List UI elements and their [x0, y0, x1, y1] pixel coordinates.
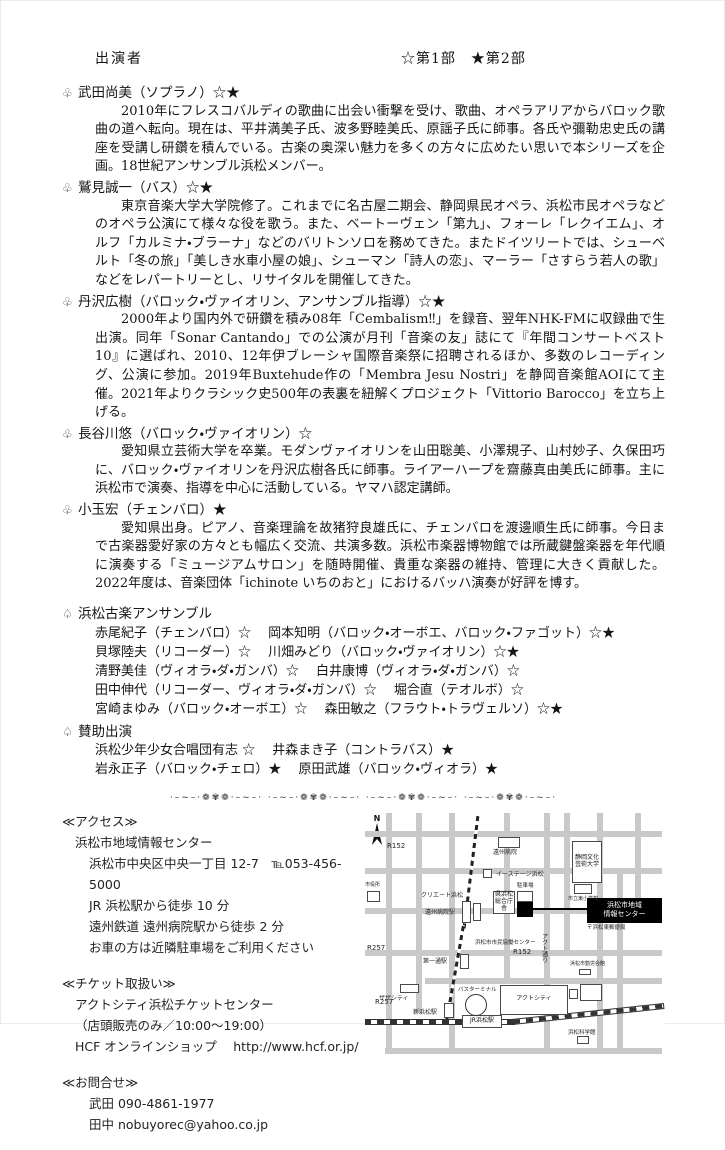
guest-title: 賛助出演: [78, 723, 132, 742]
map-label: アクト通り: [540, 933, 547, 963]
map-label: 新浜松駅: [413, 1010, 437, 1017]
map-label: クリエート浜松: [421, 893, 463, 900]
ticket-heading: ≪チケット取扱い≫: [62, 973, 365, 994]
venue-highlight-label: 浜松市地域 情報センター: [587, 898, 662, 923]
map-label: 市立東小学校: [568, 897, 598, 903]
map-building: [367, 891, 380, 902]
ensemble-members: 赤尾紀子（チェンバロ）☆ 岡本知明（バロック・オーボエ、バロック・ファゴット）☆…: [62, 624, 665, 720]
page-title: 出演者: [95, 48, 143, 68]
ticket-section: ≪チケット取扱い≫ アクトシティ浜松チケットセンター（店頭販売のみ／10:00〜…: [62, 973, 365, 1057]
map-label: R152: [387, 843, 405, 851]
bus-terminal-circle: [465, 994, 487, 1016]
access-section: ≪アクセス≫ 浜松市地域情報センター 浜松市中央区中央一丁目 12-7 ℡053…: [62, 811, 365, 958]
performer-entry: ♧ 鷲見誠一（バス）☆★ 東京音楽大学大学院修了。これまでに名古屋二期会、静岡県…: [62, 179, 665, 291]
performer-entry: ♧ 丹沢広樹（バロック・ヴァイオリン、アンサンブル指導）☆★ 2000年より国内…: [62, 293, 665, 423]
performer-bio: 東京音楽大学大学院修了。これまでに名古屋二期会、静岡県民オペラ、浜松市民オペラな…: [95, 198, 665, 291]
program-page: 出演者 ☆第1部 ★第2部 ♧ 武田尚美（ソプラノ）☆★ 2010年にフレスコバ…: [0, 0, 725, 1150]
guest-members: 浜松少年少女合唱団有志 ☆ 井森まき子（コントラバス）★岩永正子（バロック・チェ…: [62, 741, 665, 779]
part-legend: ☆第1部 ★第2部: [401, 48, 526, 68]
venue-name: 浜松市地域情報センター: [75, 832, 365, 853]
club-bullet-icon: ♧: [62, 293, 78, 312]
club-bullet-icon: ♧: [62, 425, 78, 444]
map-building: [460, 954, 469, 969]
map-building: [569, 989, 578, 999]
map-building: [400, 984, 419, 993]
map-building: [517, 891, 533, 902]
map-building: [579, 969, 591, 975]
ensemble-section: ♤ 浜松古楽アンサンブル 赤尾紀子（チェンバロ）☆ 岡本知明（バロック・オーボエ…: [62, 605, 665, 720]
venue-building: [517, 902, 533, 917]
performer-bio: 愛知県出身。ピアノ、音楽理論を故猪狩良雄氏に、チェンバロを渡邊順生氏に師事。今日…: [95, 520, 665, 594]
performer-bio: 2010年にフレスコバルディの歌曲に出会い衝撃を受け、歌曲、オペラアリアからバロ…: [95, 103, 665, 177]
contact-lines: 武田 090-4861-1977田中 nobuyorec@yahoo.co.jp: [62, 1093, 365, 1135]
map-label: ザザシティ: [379, 996, 409, 1003]
club-bullet-icon: ♧: [62, 179, 78, 198]
access-line: 浜松市中央区中央一丁目 12-7 ℡053-456-5000: [89, 853, 365, 895]
map-label: R152: [513, 949, 531, 957]
map-building: 静岡文化 芸術大学: [572, 841, 602, 883]
map-building: JR浜松駅: [462, 1015, 502, 1028]
ticket-line: HCF オンラインショップ http://www.hcf.or.jp/: [75, 1036, 365, 1057]
ensemble-member-line: 田中伸代（リコーダー、ヴィオラ・ダ・ガンバ）☆ 堀合直（テオルボ）☆: [95, 681, 665, 700]
map-building: [444, 1003, 454, 1018]
map-label: 駐車場: [517, 883, 534, 889]
performer-bio: 愛知県立芸術大学を卒業。モダンヴァイオリンを山田聡美、小澤規子、山村妙子、久保田…: [95, 443, 665, 499]
map-road: [617, 868, 623, 1053]
access-line: 遠州鉄道 遠州病院駅から徒歩 2 分: [89, 916, 365, 937]
ticket-line: アクトシティ浜松チケットセンター: [75, 994, 365, 1015]
north-label: N: [369, 815, 385, 823]
map-label: R257: [367, 945, 385, 953]
performer-name: 鷲見誠一（バス）☆★: [78, 179, 213, 198]
map-label: バスターミナル: [458, 987, 497, 993]
map-building: [462, 901, 471, 923]
guest-member-line: 浜松少年少女合唱団有志 ☆ 井森まき子（コントラバス）★: [95, 741, 665, 760]
page-header: 出演者 ☆第1部 ★第2部: [62, 48, 665, 68]
map-building: [577, 1036, 589, 1044]
spade-bullet-icon: ♤: [62, 723, 78, 742]
club-bullet-icon: ♧: [62, 84, 78, 103]
access-line: お車の方は近隣駐車場をご利用ください: [89, 937, 365, 958]
map-label: 〒浜松東郵便局: [587, 925, 626, 931]
map-label: 浜松市勤労会館: [570, 962, 605, 968]
map-building: アクトシティ: [500, 985, 568, 1015]
performer-entry: ♧ 長谷川悠（バロック・ヴァイオリン）☆ 愛知県立芸術大学を卒業。モダンヴァイオ…: [62, 425, 665, 499]
map-label: 浜松市市民協働センター: [475, 940, 536, 946]
contact-heading: ≪お問合せ≫: [62, 1072, 365, 1093]
map-label: 遠州病院: [493, 850, 517, 857]
spade-bullet-icon: ♤: [62, 605, 78, 624]
contact-line: 武田 090-4861-1977: [89, 1093, 365, 1114]
performer-entry: ♧ 武田尚美（ソプラノ）☆★ 2010年にフレスコバルディの歌曲に出会い衝撃を受…: [62, 84, 665, 177]
performer-name: 小玉宏（チェンバロ）★: [78, 501, 227, 520]
map-label: 浜松科学館: [568, 1030, 596, 1036]
performer-bio: 2000年より国内外で研鑽を積み08年「Cembalism‼」を録音、翌年NHK…: [95, 311, 665, 423]
map-road: [416, 813, 422, 1013]
contact-line: 田中 nobuyorec@yahoo.co.jp: [89, 1114, 365, 1135]
map-label: 第一通駅: [423, 959, 447, 966]
ensemble-member-line: 宮崎まゆみ（バロック・オーボエ）☆ 森田敏之（フラウト・トラヴェルソ）☆★: [95, 700, 665, 719]
ornament-divider: ·–~–·❁✾❁·–~–· ·–~–·❁✾❁·–~–· ·–~–·❁✾❁·–~–…: [62, 793, 665, 803]
club-bullet-icon: ♧: [62, 501, 78, 520]
map: N 静岡文化 芸術大学県浜松 総合庁舎アクトシティJR浜松駅浜松市地域 情報セン…: [365, 813, 665, 1085]
info-section: ≪アクセス≫ 浜松市地域情報センター 浜松市中央区中央一丁目 12-7 ℡053…: [62, 811, 665, 1150]
map-road: [564, 813, 570, 953]
map-building: [580, 984, 602, 1001]
access-heading: ≪アクセス≫: [62, 811, 365, 832]
map-building: [498, 837, 520, 848]
ensemble-member-line: 清野美佳（ヴィオラ・ダ・ガンバ）☆ 白井康博（ヴィオラ・ダ・ガンバ）☆: [95, 662, 665, 681]
map-label: 遠州病院駅: [425, 910, 455, 917]
ticket-lines: アクトシティ浜松チケットセンター（店頭販売のみ／10:00〜19:00）HCF …: [62, 994, 365, 1057]
ensemble-member-line: 貝塚陸夫（リコーダー）☆ 川畑みどり（バロック・ヴァイオリン）☆★: [95, 643, 665, 662]
ensemble-title: 浜松古楽アンサンブル: [78, 605, 212, 624]
map-label: イーステージ浜松: [496, 872, 544, 879]
performer-name: 長谷川悠（バロック・ヴァイオリン）☆: [78, 425, 312, 444]
contact-section: ≪お問合せ≫ 武田 090-4861-1977田中 nobuyorec@yaho…: [62, 1072, 365, 1135]
performer-name: 丹沢広樹（バロック・ヴァイオリン、アンサンブル指導）☆★: [78, 293, 445, 312]
venue-leader-line: [533, 908, 587, 910]
ticket-line: （店頭販売のみ／10:00〜19:00）: [75, 1015, 365, 1036]
guest-member-line: 岩永正子（バロック・チェロ）★ 原田武雄（バロック・ヴィオラ）★: [95, 760, 665, 779]
guest-section: ♤ 賛助出演 浜松少年少女合唱団有志 ☆ 井森まき子（コントラバス）★岩永正子（…: [62, 723, 665, 780]
map-building: 県浜松 総合庁舎: [493, 891, 515, 914]
access-line: JR 浜松駅から徒歩 10 分: [89, 895, 365, 916]
map-building: [473, 903, 481, 921]
map-building: [574, 884, 592, 894]
performer-list: ♧ 武田尚美（ソプラノ）☆★ 2010年にフレスコバルディの歌曲に出会い衝撃を受…: [62, 84, 665, 594]
map-label: 市役所: [365, 883, 380, 889]
performer-entry: ♧ 小玉宏（チェンバロ）★ 愛知県出身。ピアノ、音楽理論を故猪狩良雄氏に、チェン…: [62, 501, 665, 594]
access-lines: 浜松市中央区中央一丁目 12-7 ℡053-456-5000JR 浜松駅から徒歩…: [62, 853, 365, 958]
performer-name: 武田尚美（ソプラノ）☆★: [78, 84, 240, 103]
info-left-column: ≪アクセス≫ 浜松市地域情報センター 浜松市中央区中央一丁目 12-7 ℡053…: [62, 811, 365, 1150]
map-building: [483, 869, 492, 878]
ensemble-member-line: 赤尾紀子（チェンバロ）☆ 岡本知明（バロック・オーボエ、バロック・ファゴット）☆…: [95, 624, 665, 643]
